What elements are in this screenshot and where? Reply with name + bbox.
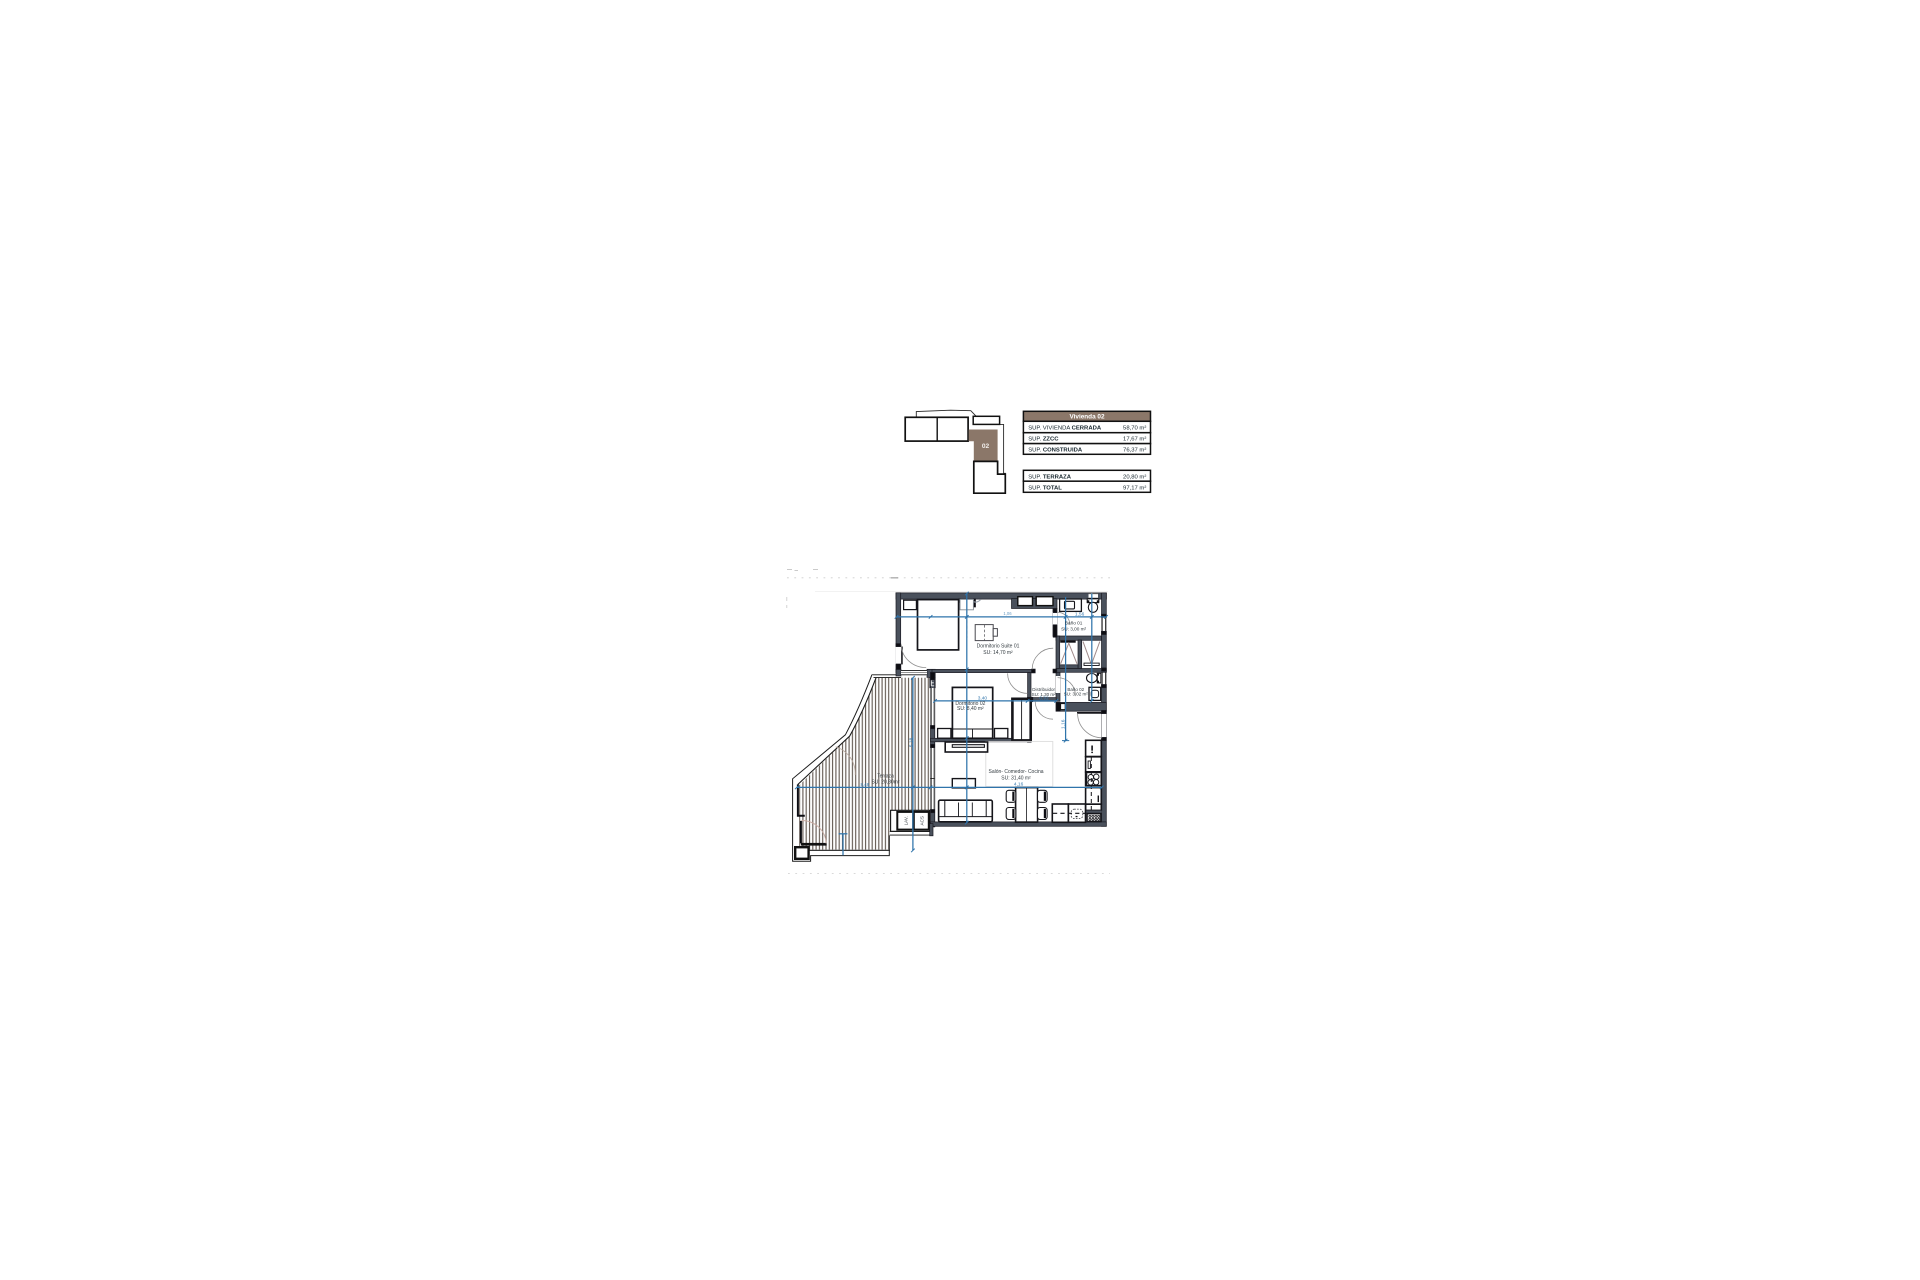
- svg-text:SUP. VIVIENDA CERRADA: SUP. VIVIENDA CERRADA: [1028, 426, 1102, 432]
- svg-text:Vivienda 02: Vivienda 02: [1069, 414, 1104, 421]
- svg-text:SU: 14,70 m²: SU: 14,70 m²: [983, 650, 1013, 656]
- svg-text:17,67 m²: 17,67 m²: [1123, 437, 1146, 443]
- svg-text:Dormitorio Suite 01: Dormitorio Suite 01: [977, 644, 1020, 650]
- svg-text:SUP. TOTAL: SUP. TOTAL: [1028, 485, 1062, 491]
- svg-text:Terraza: Terraza: [877, 773, 894, 779]
- svg-text:58,70 m²: 58,70 m²: [1123, 426, 1146, 432]
- svg-text:5,18: 5,18: [909, 738, 915, 748]
- svg-text:SU: 3,00 m²: SU: 3,00 m²: [1061, 626, 1086, 631]
- svg-text:76,37 m²: 76,37 m²: [1123, 448, 1146, 454]
- svg-text:1,56: 1,56: [1075, 611, 1085, 617]
- svg-text:4,16: 4,16: [1014, 782, 1024, 788]
- svg-text:SUP. TERRAZA: SUP. TERRAZA: [1028, 474, 1072, 480]
- svg-text:SU: 31,40 m²: SU: 31,40 m²: [1001, 776, 1031, 782]
- svg-text:97,17 m²: 97,17 m²: [1123, 485, 1146, 491]
- svg-text:SUP. ZZCC: SUP. ZZCC: [1028, 437, 1059, 443]
- svg-text:SU: 3,02 m²: SU: 3,02 m²: [1064, 692, 1089, 697]
- svg-text:LAV.: LAV.: [903, 816, 908, 825]
- svg-text:SU: 1,30 m²: SU: 1,30 m²: [1032, 692, 1057, 697]
- svg-text:1,16: 1,16: [1061, 719, 1067, 729]
- svg-text:02: 02: [982, 443, 990, 450]
- svg-text:SUP. CONSTRUIDA: SUP. CONSTRUIDA: [1028, 448, 1083, 454]
- svg-text:SU: 8,40 m²: SU: 8,40 m²: [957, 706, 984, 712]
- svg-text:SU: 20,80m²: SU: 20,80m²: [871, 780, 899, 786]
- svg-text:20,80 m²: 20,80 m²: [1123, 474, 1146, 480]
- svg-text:Baño 01: Baño 01: [1065, 621, 1083, 626]
- svg-text:1,06: 1,06: [1003, 611, 1012, 616]
- svg-text:Salón- Comedor- Cocina: Salón- Comedor- Cocina: [988, 769, 1043, 775]
- svg-text:8,48: 8,48: [861, 782, 870, 787]
- svg-text:ACS: ACS: [919, 816, 924, 825]
